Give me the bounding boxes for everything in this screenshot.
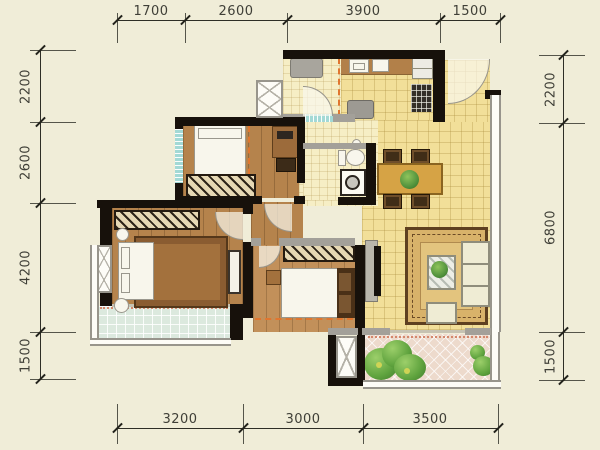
dim-tick xyxy=(243,404,244,444)
dim-label: 1500 xyxy=(544,327,559,387)
shaft-cap xyxy=(328,328,358,335)
dim-label: 2200 xyxy=(19,57,34,117)
television xyxy=(374,246,381,296)
bedroom2-bed xyxy=(194,124,246,178)
wall-bathroom-bottom xyxy=(338,197,376,205)
balcony-left-frame xyxy=(90,245,99,345)
dim-label: 3200 xyxy=(150,412,210,427)
dim-label: 3500 xyxy=(400,412,460,427)
balcony-right-frame xyxy=(490,332,500,384)
toilet-bowl xyxy=(346,149,365,166)
floor-plan: 1700 2600 3900 1500 2200 2600 4200 1500 … xyxy=(0,0,600,450)
dim-tick xyxy=(498,404,499,444)
window-pane xyxy=(98,269,110,291)
dim-label: 2600 xyxy=(19,133,34,193)
dim-label: 2200 xyxy=(544,60,559,120)
coffee-table-plant xyxy=(431,261,448,278)
wall-balcony-post xyxy=(230,304,243,340)
dim-tick xyxy=(363,404,364,444)
fridge-line xyxy=(413,68,432,69)
pillow xyxy=(339,273,351,291)
desk-monitor xyxy=(277,131,293,139)
bedroom2-window xyxy=(175,129,183,183)
window-pane xyxy=(98,247,110,269)
dim-top-line xyxy=(117,20,500,21)
washing-machine xyxy=(340,169,366,196)
wall-top xyxy=(283,50,445,59)
dim-label: 2600 xyxy=(206,4,266,19)
dining-table-plant xyxy=(400,170,419,189)
shower-dash-trim xyxy=(338,58,340,116)
toilet-tank xyxy=(338,150,346,166)
dim-label: 3900 xyxy=(333,4,393,19)
sofa xyxy=(461,241,490,307)
balcony-door-track xyxy=(390,330,465,333)
wall-living-balcony xyxy=(362,328,390,335)
wall-master-left xyxy=(100,293,112,306)
master-wardrobe xyxy=(114,210,200,230)
wall-bedroom2-top xyxy=(175,117,305,126)
sofa-cushion-line xyxy=(463,263,488,265)
dim-label: 1700 xyxy=(121,4,181,19)
dining-chair xyxy=(411,194,430,209)
ottoman xyxy=(426,302,457,324)
dining-chair xyxy=(383,149,402,164)
wall-master-left xyxy=(100,200,112,245)
wall-kitchen-right xyxy=(433,50,445,122)
washer-drum xyxy=(345,175,360,190)
dim-label: 3000 xyxy=(273,412,333,427)
window-pane xyxy=(258,82,281,99)
wall-kitchen-bottom xyxy=(333,114,355,122)
master-bed xyxy=(118,242,154,300)
pillow xyxy=(121,247,130,269)
wall-living-balcony xyxy=(465,328,491,335)
shrub xyxy=(394,354,426,381)
wall-bedroom3-top xyxy=(279,238,355,246)
master-tv-panel xyxy=(228,250,241,294)
oven-stove xyxy=(411,84,432,112)
dim-bottom-line xyxy=(117,428,498,429)
lightwell-window xyxy=(256,80,283,118)
pillow xyxy=(198,128,242,139)
shaft-window xyxy=(336,336,357,378)
balcony-right-frame-bottom xyxy=(363,380,501,389)
bedroom3-bed xyxy=(281,268,355,318)
kitchen-sink xyxy=(349,59,369,73)
wall-bathroom-right xyxy=(366,143,376,205)
bedroom3-dash-trim xyxy=(255,318,353,320)
dim-label: 1500 xyxy=(440,4,500,19)
shrub-fruit xyxy=(404,368,410,374)
balcony-left-frame-bottom xyxy=(90,338,231,346)
wall-bedroom2-right xyxy=(297,117,305,183)
kitchen-cooktop xyxy=(372,59,389,72)
refrigerator xyxy=(412,58,433,79)
wall-bedroom2-left xyxy=(175,117,183,129)
dim-tick xyxy=(117,404,118,444)
shrub-fruit xyxy=(376,362,382,368)
wall-master-right xyxy=(243,242,253,318)
wall-master-right xyxy=(243,208,253,214)
wall-post xyxy=(294,196,305,204)
wall-bathroom-top xyxy=(303,143,366,149)
window-pane xyxy=(338,338,355,376)
bedroom2-desk xyxy=(272,126,300,158)
sink-basin xyxy=(353,63,365,70)
balcony-right-trim xyxy=(368,336,488,338)
shower-mat xyxy=(290,58,323,78)
wall-bedroom3-top xyxy=(251,238,261,246)
dim-label: 4200 xyxy=(19,238,34,298)
bedroom2-chair xyxy=(276,158,296,172)
dim-label: 6800 xyxy=(544,198,559,258)
pillow xyxy=(121,273,130,293)
wall-shaft-bottom xyxy=(328,378,365,386)
master-side-table xyxy=(114,298,129,313)
wall-master-top xyxy=(97,200,253,208)
dim-label: 1500 xyxy=(19,326,34,386)
living-room-window-wall xyxy=(490,95,501,332)
pillow xyxy=(339,295,351,313)
sofa-cushion-line xyxy=(463,285,488,287)
dining-chair xyxy=(411,149,430,164)
bedroom2-wardrobe xyxy=(186,174,256,198)
dining-chair xyxy=(383,194,402,209)
master-side-table xyxy=(116,228,129,241)
bedroom3-nightstand xyxy=(266,270,281,285)
window-pane xyxy=(258,99,281,116)
